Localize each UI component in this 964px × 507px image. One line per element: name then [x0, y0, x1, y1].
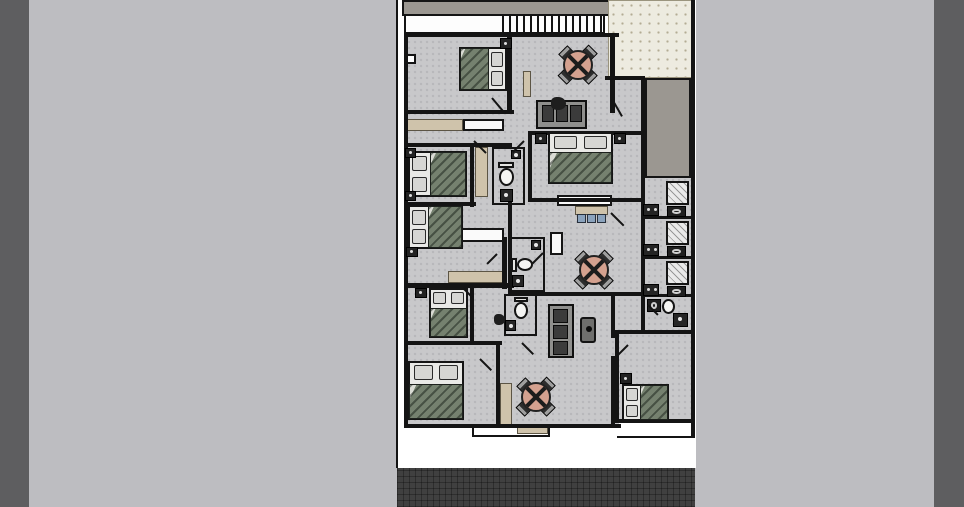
rear-setback — [619, 423, 691, 436]
wall — [404, 341, 502, 345]
stool — [587, 214, 596, 223]
bath-counter — [643, 284, 659, 296]
wall — [404, 110, 514, 114]
bed-pillow — [412, 210, 426, 225]
wall — [617, 436, 695, 438]
sofa-cushion — [553, 309, 568, 323]
canvas-side-strip — [0, 0, 29, 507]
bed-blanket — [409, 384, 463, 419]
wall — [528, 198, 645, 202]
wall — [605, 76, 645, 80]
bed — [429, 288, 468, 338]
bed-pillow — [626, 405, 638, 417]
toilet-bowl — [517, 258, 533, 271]
side-table — [620, 373, 632, 384]
bed-blanket — [430, 308, 467, 337]
stool — [577, 214, 586, 223]
bed-blanket — [430, 152, 466, 196]
bed-pillow — [412, 177, 427, 193]
wall — [502, 237, 507, 289]
bed-blanket — [428, 206, 462, 248]
bed-blanket — [460, 48, 489, 90]
wall — [470, 147, 474, 207]
tv-unit — [580, 317, 596, 343]
sink — [500, 189, 513, 202]
stairs — [404, 14, 605, 34]
wardrobe — [500, 383, 512, 425]
side-table — [614, 133, 626, 144]
side-table — [415, 288, 427, 298]
bed-blanket — [640, 385, 668, 420]
wall — [615, 334, 619, 422]
toilet-bowl — [499, 168, 514, 186]
sofa — [548, 304, 574, 358]
side-table — [405, 191, 416, 201]
wall — [496, 345, 500, 428]
courtyard-patio — [608, 0, 693, 78]
bed-pillow — [414, 365, 433, 380]
bed — [459, 47, 507, 91]
bed-pillow — [491, 52, 503, 67]
dresser — [550, 232, 563, 255]
wall — [691, 0, 695, 437]
bed-pillow — [626, 388, 638, 400]
wall — [404, 424, 621, 428]
street — [397, 468, 695, 507]
bath-counter — [643, 204, 659, 216]
side-table — [500, 38, 512, 49]
bed — [548, 132, 613, 184]
wardrobe — [406, 119, 463, 131]
bed — [408, 151, 467, 197]
sink — [505, 320, 516, 331]
wall — [645, 78, 647, 178]
bed-pillow — [554, 136, 577, 149]
bed-pillow — [451, 292, 464, 304]
doormat — [517, 427, 548, 434]
bed — [408, 361, 464, 420]
bed-pillow — [412, 229, 426, 244]
toilet-bowl — [662, 299, 675, 314]
bed-pillow — [439, 365, 458, 380]
wall — [528, 131, 532, 202]
dresser — [463, 119, 504, 131]
bed-pillow — [433, 292, 446, 304]
bed — [622, 384, 669, 421]
bath-counter — [643, 244, 659, 256]
floorplan-viewport[interactable] — [0, 0, 964, 507]
wardrobe — [523, 71, 531, 97]
toilet-bowl — [514, 302, 528, 319]
bed — [408, 205, 463, 249]
sink — [512, 275, 524, 287]
wardrobe — [475, 147, 488, 197]
canvas-side-strip — [934, 0, 964, 507]
wardrobe — [448, 271, 503, 283]
side-patio — [645, 78, 691, 178]
shower — [666, 261, 689, 285]
bed-pillow — [412, 156, 427, 172]
side-table — [406, 247, 418, 257]
stair-treads — [502, 16, 607, 32]
sofa-cushion — [570, 105, 582, 122]
stool — [597, 214, 606, 223]
bed-pillow — [584, 136, 607, 149]
shower — [666, 221, 689, 245]
shower — [666, 181, 689, 205]
sink — [673, 313, 688, 327]
bed-pillow — [491, 71, 503, 86]
decor-plant — [551, 97, 566, 110]
toilet — [667, 286, 686, 297]
side-table — [535, 133, 547, 144]
side-table — [405, 148, 416, 158]
decor-plant — [494, 314, 505, 325]
bed-blanket — [549, 152, 612, 183]
sofa-cushion — [553, 341, 568, 355]
sofa-cushion — [553, 325, 568, 339]
toilet — [667, 206, 686, 217]
wall — [396, 0, 398, 468]
sink — [531, 240, 541, 250]
toilet — [667, 246, 686, 257]
